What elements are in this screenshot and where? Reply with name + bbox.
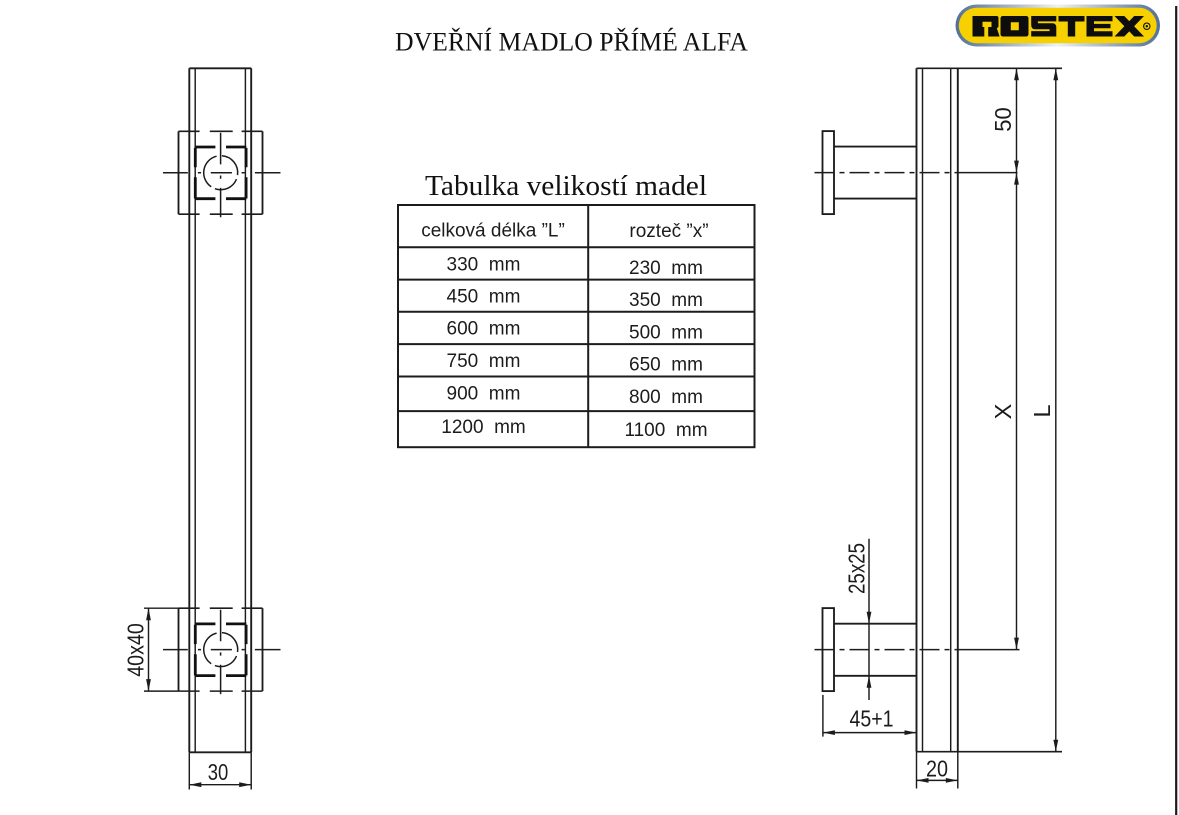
svg-text:celková délka ”L”: celková délka ”L”	[421, 221, 565, 242]
svg-text:L: L	[1029, 404, 1055, 417]
svg-text:350 mm: 350 mm	[629, 290, 703, 311]
svg-text:600 mm: 600 mm	[447, 319, 521, 340]
svg-text:20: 20	[926, 756, 948, 782]
svg-text:330 mm: 330 mm	[447, 254, 521, 275]
svg-text:650 mm: 650 mm	[629, 355, 703, 376]
svg-text:800 mm: 800 mm	[629, 387, 703, 408]
svg-text:X: X	[990, 403, 1016, 419]
svg-text:750 mm: 750 mm	[447, 351, 521, 372]
svg-text:1200 mm: 1200 mm	[441, 417, 525, 438]
svg-text:45+1: 45+1	[850, 706, 894, 732]
svg-text:25x25: 25x25	[844, 543, 870, 594]
svg-text:DVEŘNÍ MADLO PŘÍMÉ ALFA: DVEŘNÍ MADLO PŘÍMÉ ALFA	[395, 28, 748, 57]
svg-text:900 mm: 900 mm	[447, 384, 521, 405]
svg-text:50: 50	[990, 107, 1016, 132]
svg-text:230 mm: 230 mm	[629, 258, 703, 279]
svg-text:Tabulka velikostí madel: Tabulka velikostí madel	[425, 171, 707, 202]
svg-text:450 mm: 450 mm	[447, 287, 521, 308]
svg-text:500 mm: 500 mm	[629, 322, 703, 343]
svg-text:1100 mm: 1100 mm	[624, 420, 707, 441]
svg-text:30: 30	[208, 759, 229, 785]
svg-text:rozteč ”x”: rozteč ”x”	[629, 221, 708, 242]
svg-text:40x40: 40x40	[123, 623, 149, 677]
